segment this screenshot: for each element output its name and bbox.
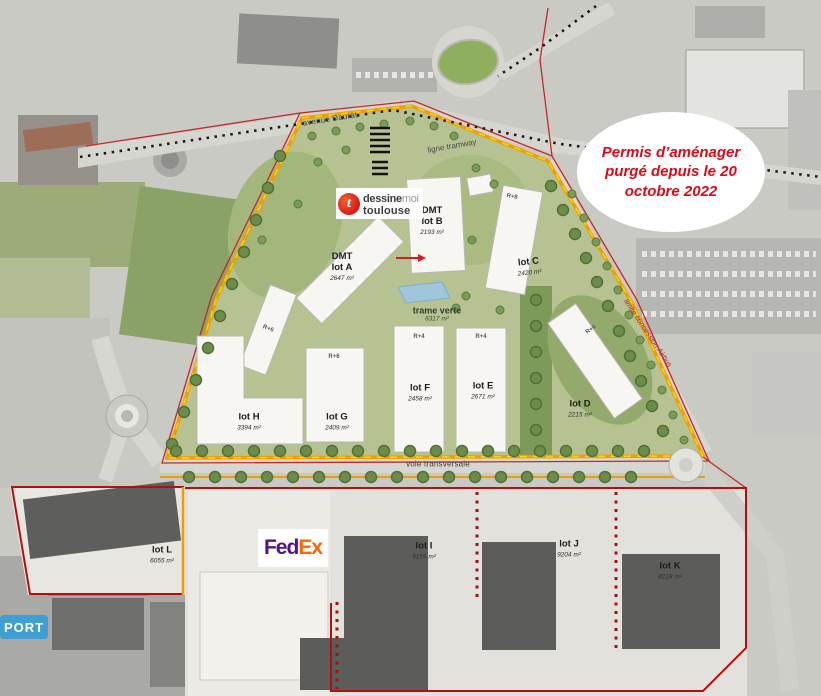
- tram-stop-hatch: [370, 128, 390, 174]
- trame-verte-area: 6317 m²: [413, 316, 462, 323]
- fedex-fed: Fed: [264, 536, 298, 560]
- port-badge: PORT: [0, 615, 48, 639]
- permit-annotation-text: Permis d’aménager purgé depuis le 20 oct…: [595, 143, 747, 202]
- floor-label: R+6: [328, 354, 339, 360]
- port-badge-text: PORT: [4, 620, 44, 635]
- lot-f-label: lot F 2458 m²: [408, 384, 432, 403]
- permit-annotation-balloon: Permis d’aménager purgé depuis le 20 oct…: [577, 112, 765, 232]
- fedex-ex: Ex: [298, 536, 322, 560]
- floor-label: R+4: [413, 334, 424, 340]
- lot-e-label: lot E 2671 m²: [471, 382, 495, 401]
- west-roundabout: [106, 395, 148, 437]
- floor-label: R+4: [475, 334, 486, 340]
- lot-j-building: [482, 542, 556, 650]
- lot-d-label: lot D 2215 m²: [568, 400, 592, 419]
- dessine-moi-toulouse-logo: t dessinemoi toulouse: [336, 188, 423, 219]
- lot-g-label: lot G 2409 m²: [325, 413, 349, 432]
- lot-l-label: lot L 6055 m²: [150, 546, 174, 565]
- voie-transversale-label: voie transversale: [406, 460, 470, 469]
- lot-a-label: DMT lot A 2647 m²: [330, 252, 354, 282]
- dmt-logo-text: dessinemoi toulouse: [363, 190, 419, 217]
- lot-i-label: lot I 9155 m²: [412, 542, 436, 561]
- dmt-logo-letter: t: [347, 197, 351, 211]
- lot-j-label: lot J 9204 m²: [557, 540, 581, 559]
- east-roundabout: [669, 448, 703, 482]
- dmt-word-toulouse: toulouse: [363, 206, 419, 217]
- lot-c-label: lot C 2420 m²: [516, 256, 542, 277]
- dmt-word-dessine: dessine: [363, 193, 402, 205]
- trame-verte-label: trame verte 6317 m²: [413, 306, 462, 323]
- lot-b-label: DMT lot B 2193 m²: [420, 206, 444, 236]
- trame-verte-name: trame verte: [413, 306, 462, 316]
- dmt-word-moi: moi: [402, 193, 419, 205]
- aerial-map: [0, 0, 821, 696]
- dmt-logo-mark-icon: t: [338, 193, 360, 215]
- fedex-logo: FedEx: [258, 529, 328, 567]
- lot-h-label: lot H 3394 m²: [237, 413, 261, 432]
- site-plan: avenue Daurat ligne tramway voie transve…: [0, 0, 821, 696]
- lot-k-label: lot K 8218 m²: [658, 562, 682, 581]
